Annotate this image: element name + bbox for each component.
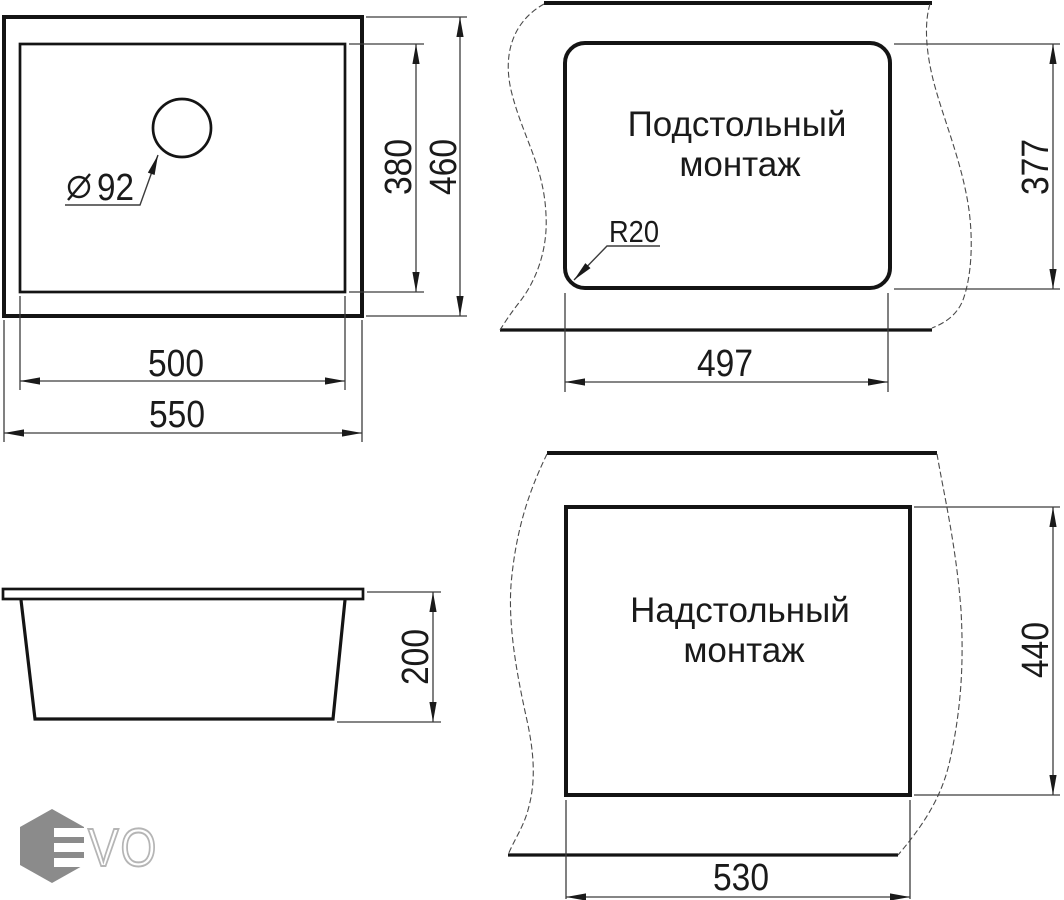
dim-outer-height-value: 460	[423, 139, 465, 195]
sink-side-view: 200	[3, 589, 441, 722]
dim-cutout-height-value: 440	[1015, 622, 1057, 678]
sink-bowl-outline	[20, 44, 345, 292]
break-line-left	[508, 454, 547, 855]
rim-flange-profile	[3, 589, 363, 599]
undermount-title-line1: Подстольный	[628, 105, 847, 144]
sink-top-view: 92 380 460 500 550	[4, 17, 467, 442]
faucet-hole	[153, 99, 211, 157]
logo-e-bar	[54, 858, 87, 867]
technical-drawing-canvas: 92 380 460 500 550 Подстольный монтаж	[0, 0, 1064, 900]
break-line-left	[500, 4, 546, 330]
logo-letters: VO	[88, 818, 158, 878]
logo-e-bar	[54, 828, 87, 837]
overmount-title-line1: Надстольный	[630, 591, 850, 630]
undermount-cutout-view: Подстольный монтаж R20 497 377	[500, 3, 1060, 392]
break-line-right	[926, 4, 971, 328]
sink-dimension-drawing: 92 380 460 500 550 Подстольный монтаж	[0, 0, 1064, 900]
dim-cutout-height-value: 377	[1015, 139, 1057, 195]
dim-bowl-depth-value: 200	[395, 629, 437, 685]
overmount-title-line2: монтаж	[683, 631, 805, 670]
corner-radius-callout: R20	[574, 214, 660, 280]
hole-diameter-value: 92	[97, 167, 134, 209]
radius-leader-line	[574, 246, 660, 280]
logo-e-bar	[54, 843, 87, 852]
hole-diameter-callout: 92	[65, 155, 158, 209]
corner-radius-value: R20	[609, 214, 659, 249]
dim-inner-height-value: 380	[378, 139, 420, 195]
dim-inner-width-value: 500	[148, 343, 204, 385]
overmount-cutout-view: Надстольный монтаж 440 530	[508, 453, 1060, 899]
sink-outer-rim-outline	[4, 17, 362, 316]
dim-cutout-width-value: 497	[697, 343, 753, 385]
dim-outer-width-value: 550	[149, 394, 205, 436]
bowl-profile	[21, 600, 345, 719]
undermount-title-line2: монтаж	[679, 145, 801, 184]
dim-cutout-width-value: 530	[713, 857, 769, 899]
evo-logo: VO	[20, 809, 158, 883]
